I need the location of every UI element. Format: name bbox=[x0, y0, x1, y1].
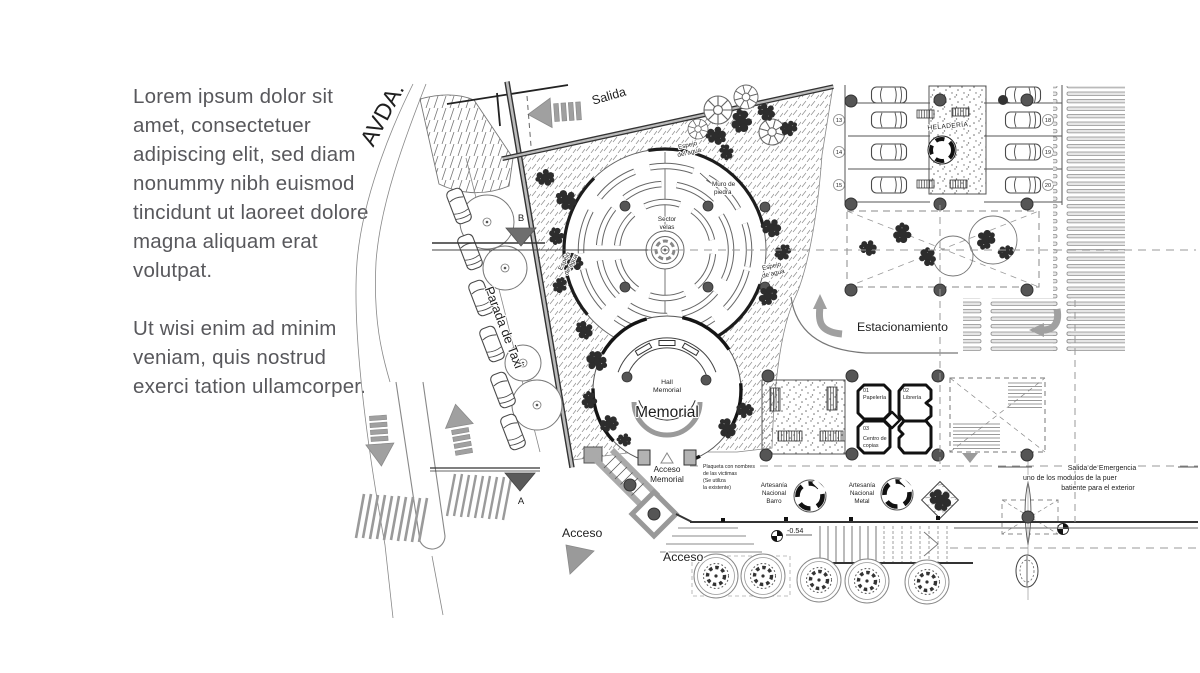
section-a-label: A bbox=[518, 496, 525, 507]
sector-label-1: Sector bbox=[658, 216, 676, 223]
stair-arrow bbox=[962, 453, 978, 463]
terrace-steps bbox=[660, 528, 762, 552]
parking-turn-arrow bbox=[813, 294, 827, 309]
svg-text:Barro: Barro bbox=[766, 498, 782, 505]
page: Lorem ipsum dolor sit amet, consectetuer… bbox=[0, 0, 1200, 673]
acceso-memorial-2: Memorial bbox=[650, 475, 684, 484]
stall-18: 18 bbox=[1045, 118, 1051, 124]
section-b-label: B bbox=[518, 213, 524, 224]
avenue-label: AVDA. bbox=[355, 78, 410, 150]
artesania-metal-kiosk bbox=[881, 478, 913, 510]
hall-label-1: Hall bbox=[661, 379, 673, 386]
svg-text:Nacional: Nacional bbox=[850, 490, 874, 497]
muro-label-2: piedra bbox=[714, 189, 732, 196]
salida-arrow bbox=[527, 96, 582, 129]
stall-14: 14 bbox=[836, 150, 842, 156]
stall-13: 13 bbox=[836, 118, 842, 124]
diamond-tree bbox=[922, 482, 959, 519]
sector-label-2: velas bbox=[660, 224, 675, 231]
svg-text:Metal: Metal bbox=[854, 498, 869, 505]
artesania-metal-label: Artesanía Nacional Metal bbox=[849, 482, 876, 505]
svg-text:de las victimas: de las victimas bbox=[703, 471, 737, 477]
svg-text:batiente para el exterior: batiente para el exterior bbox=[1061, 485, 1135, 492]
level-label: -0.54 bbox=[787, 526, 803, 535]
acceso-left-label: Acceso bbox=[562, 526, 602, 540]
estacionamiento-label: Estacionamiento bbox=[857, 320, 948, 334]
acceso-memorial-1: Acceso bbox=[654, 465, 681, 474]
svg-text:Nacional: Nacional bbox=[762, 490, 786, 497]
memorial-label: Memorial bbox=[635, 404, 699, 421]
planter bbox=[797, 558, 841, 602]
acceso-center-label: Acceso bbox=[663, 550, 703, 564]
muro-label-1: Muro de bbox=[712, 181, 736, 188]
stall-20: 20 bbox=[1045, 183, 1051, 189]
artesania-barro-kiosk bbox=[794, 480, 826, 512]
svg-text:(Se utiliza: (Se utiliza bbox=[703, 478, 726, 484]
site-plan-drawing: 13 14 15 18 19 20 bbox=[0, 0, 1200, 673]
stall-19: 19 bbox=[1045, 150, 1051, 156]
svg-text:Librería: Librería bbox=[903, 395, 921, 401]
crosswalk-right bbox=[447, 474, 511, 520]
svg-text:Salida de Emergencia: Salida de Emergencia bbox=[1068, 465, 1137, 472]
benchmark-symbol bbox=[772, 531, 783, 542]
median-island bbox=[396, 382, 445, 549]
artesania-barro-label: Artesanía Nacional Barro bbox=[761, 482, 788, 505]
svg-text:Centro de: Centro de bbox=[863, 436, 887, 442]
lane-arrow-up bbox=[442, 402, 478, 456]
svg-text:uno de los modulos de la puer: uno de los modulos de la puer bbox=[1023, 475, 1117, 482]
benchmark-symbol-2 bbox=[1058, 524, 1069, 535]
stall-15: 15 bbox=[836, 183, 842, 189]
svg-text:03: 03 bbox=[863, 426, 869, 432]
svg-text:copias: copias bbox=[863, 443, 879, 449]
planter bbox=[905, 560, 949, 604]
promenade-stairs bbox=[820, 526, 876, 562]
svg-text:Plaqueta con nombres: Plaqueta con nombres bbox=[703, 464, 755, 470]
svg-text:la existente): la existente) bbox=[703, 485, 731, 491]
plaqueta-note: Plaqueta con nombres de las victimas (Se… bbox=[703, 464, 755, 491]
lane-arrow-down bbox=[364, 415, 395, 467]
planter bbox=[741, 554, 785, 598]
svg-text:Papelería: Papelería bbox=[863, 395, 886, 401]
heladeria-kiosk bbox=[928, 136, 956, 164]
acceso-triangle bbox=[566, 545, 594, 574]
svg-text:01: 01 bbox=[863, 388, 869, 394]
hall-label-2: Memorial bbox=[653, 387, 681, 394]
salida-label: Salida bbox=[590, 85, 627, 108]
svg-text:Artesanía: Artesanía bbox=[849, 482, 876, 489]
promenade bbox=[690, 516, 1198, 604]
emergencia-note: Salida de Emergencia uno de los modulos … bbox=[1023, 465, 1136, 492]
svg-text:02: 02 bbox=[903, 388, 909, 394]
svg-text:Artesanía: Artesanía bbox=[761, 482, 788, 489]
planter bbox=[845, 559, 889, 603]
